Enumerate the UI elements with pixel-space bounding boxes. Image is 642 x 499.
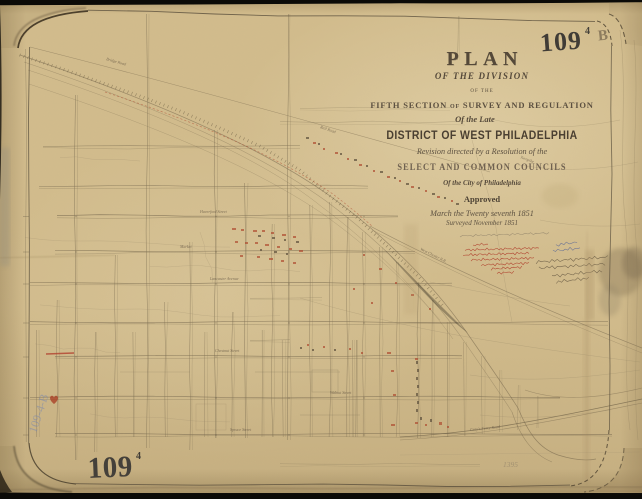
svg-text:Market: Market xyxy=(179,244,192,249)
svg-text:Chestnut Street: Chestnut Street xyxy=(215,348,240,353)
svg-text:Bridge Road: Bridge Road xyxy=(106,56,128,67)
svg-text:Spruce Street: Spruce Street xyxy=(230,427,252,432)
svg-text:Walnut Street: Walnut Street xyxy=(330,390,352,395)
svg-text:Rail Road: Rail Road xyxy=(319,124,338,135)
svg-text:Gray’s Ferry Road: Gray’s Ferry Road xyxy=(470,424,501,432)
svg-text:Haverford Street: Haverford Street xyxy=(199,209,228,214)
svg-text:Lancaster Avenue: Lancaster Avenue xyxy=(209,276,239,281)
